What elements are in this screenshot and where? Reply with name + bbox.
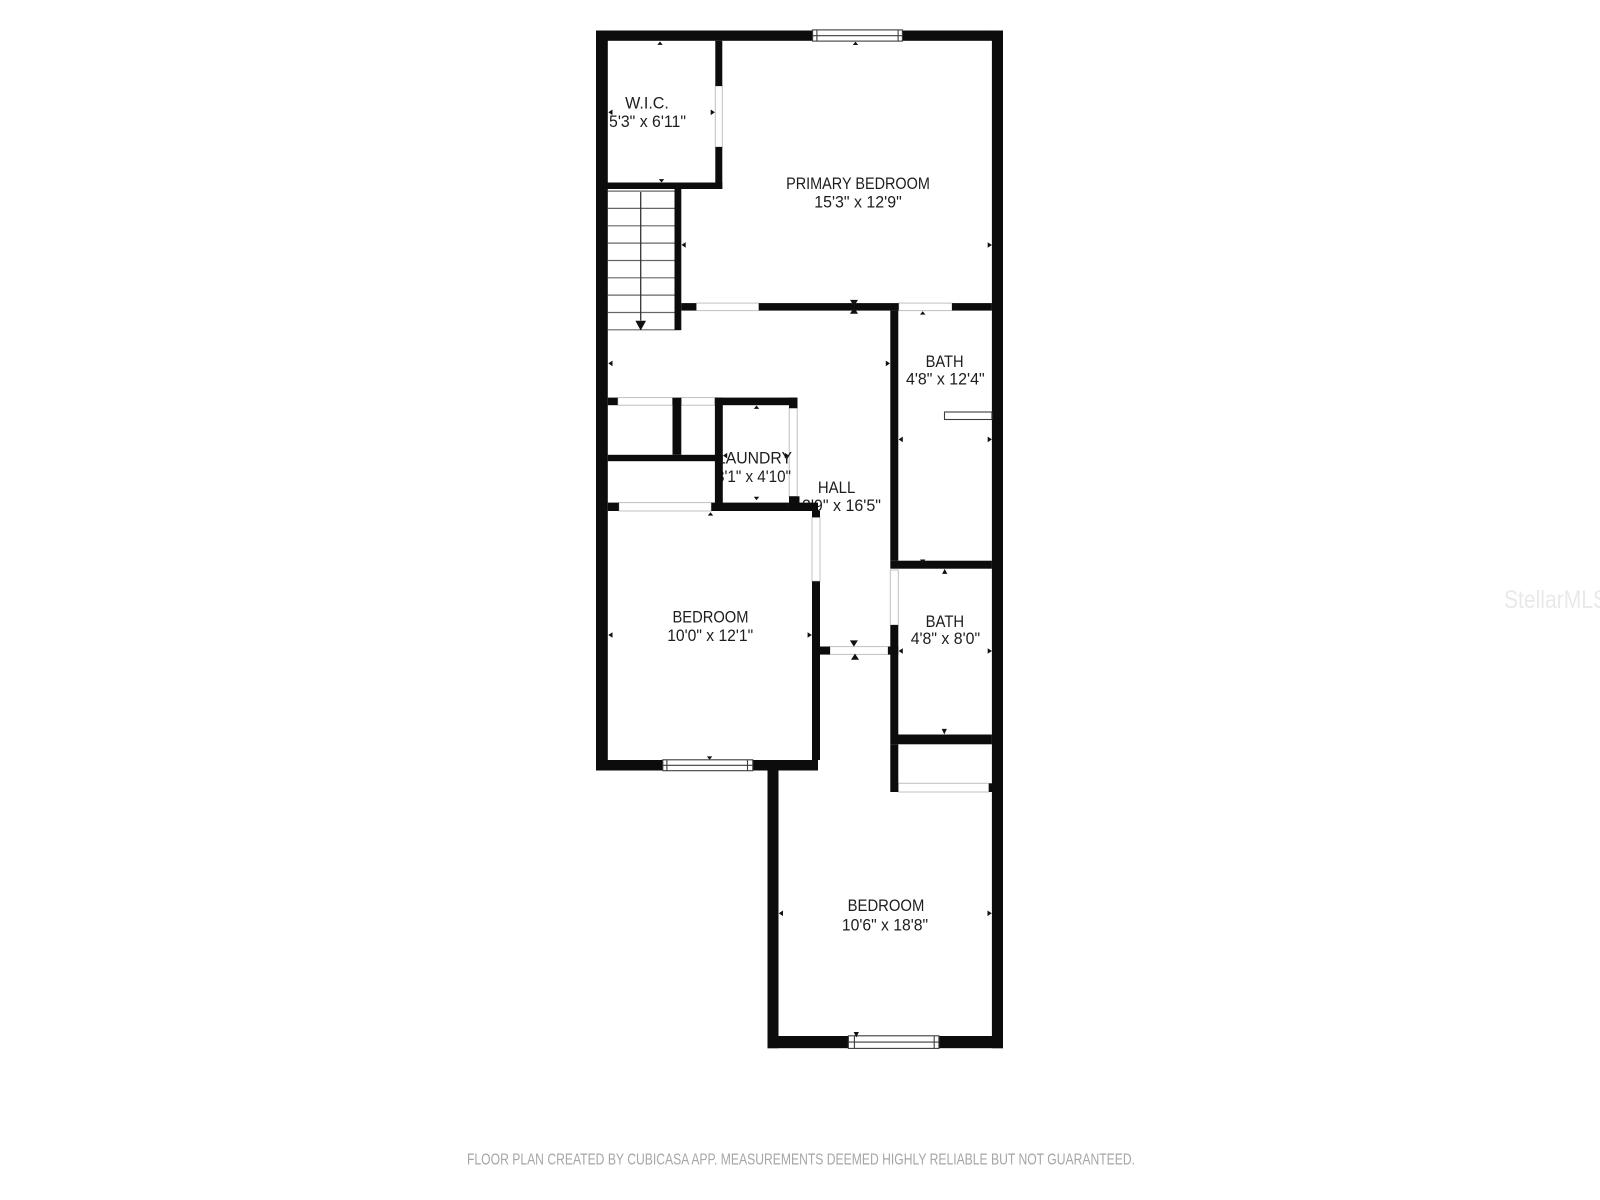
svg-text:BATH: BATH xyxy=(926,353,964,371)
svg-text:W.I.C.: W.I.C. xyxy=(625,94,669,112)
svg-text:15'3" x 12'9": 15'3" x 12'9" xyxy=(814,194,902,212)
svg-text:5'3" x 6'11": 5'3" x 6'11" xyxy=(609,113,686,131)
svg-text:BATH: BATH xyxy=(926,613,965,631)
svg-text:BEDROOM: BEDROOM xyxy=(673,609,749,627)
svg-text:LAUNDRY: LAUNDRY xyxy=(717,450,792,468)
svg-text:3'1" x 4'10": 3'1" x 4'10" xyxy=(716,468,791,486)
svg-text:StellarMLS: StellarMLS xyxy=(1504,586,1600,614)
svg-text:BEDROOM: BEDROOM xyxy=(848,897,925,915)
svg-text:HALL: HALL xyxy=(818,479,855,497)
svg-text:10'0" x 12'1": 10'0" x 12'1" xyxy=(667,627,753,645)
svg-text:PRIMARY BEDROOM: PRIMARY BEDROOM xyxy=(786,175,930,193)
svg-text:10'6" x 18'8": 10'6" x 18'8" xyxy=(842,916,928,934)
svg-text:4'8" x 8'0": 4'8" x 8'0" xyxy=(911,630,981,648)
svg-text:4'8" x 12'4": 4'8" x 12'4" xyxy=(906,371,985,389)
svg-text:FLOOR PLAN CREATED BY CUBICASA: FLOOR PLAN CREATED BY CUBICASA APP. MEAS… xyxy=(467,1151,1135,1168)
